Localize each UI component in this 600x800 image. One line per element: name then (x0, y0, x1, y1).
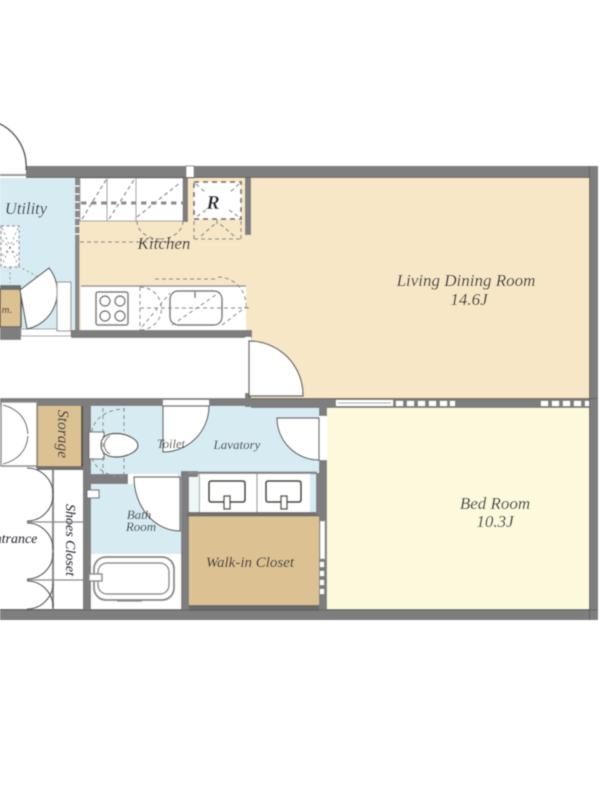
svg-text:Utility: Utility (5, 199, 48, 218)
svg-text:Kitchen: Kitchen (137, 234, 191, 253)
svg-text:Storage: Storage (54, 410, 71, 458)
svg-text:ntrance: ntrance (0, 532, 37, 547)
svg-text:Lavatory: Lavatory (213, 437, 261, 452)
svg-text:R: R (205, 192, 219, 214)
svg-text:10.3J: 10.3J (476, 512, 515, 531)
svg-text:m.: m. (2, 304, 13, 316)
svg-text:Bed Room: Bed Room (460, 494, 530, 513)
svg-text:Room: Room (125, 519, 156, 534)
svg-text:Walk-in Closet: Walk-in Closet (206, 555, 295, 571)
svg-text:Shoes Closet: Shoes Closet (62, 504, 77, 577)
svg-text:Living Dining Room: Living Dining Room (396, 271, 536, 290)
svg-text:Toilet: Toilet (157, 437, 186, 451)
svg-text:14.6J: 14.6J (450, 290, 489, 309)
